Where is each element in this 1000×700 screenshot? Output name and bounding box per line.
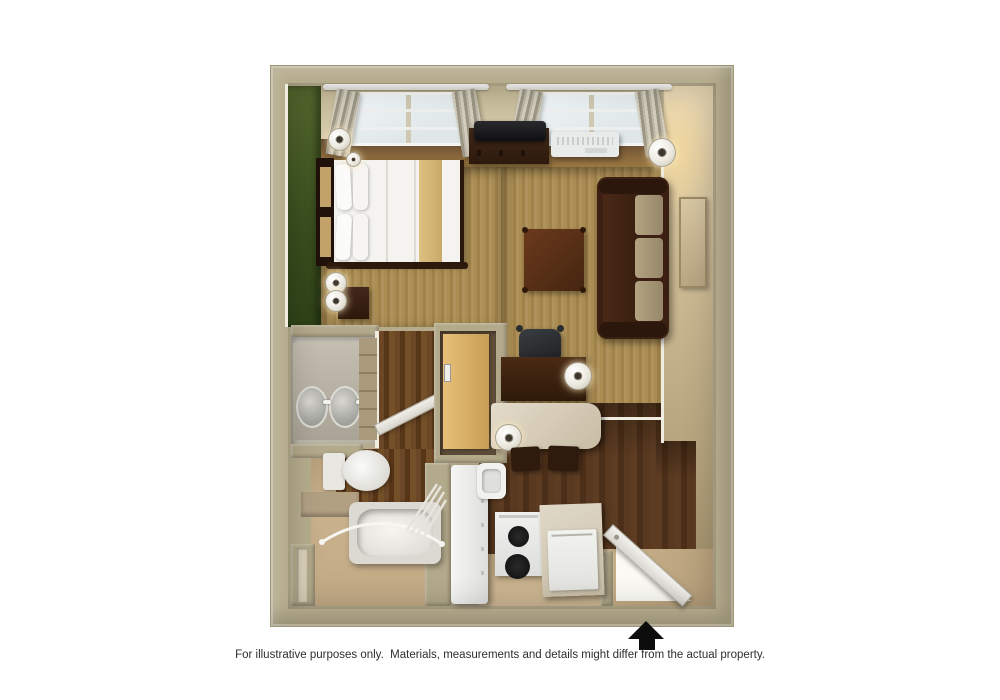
faucet — [323, 400, 331, 404]
wall-art — [679, 197, 707, 288]
desk-lamp — [564, 362, 592, 390]
bedside-lamp — [325, 290, 347, 312]
entry-wood-floor — [656, 441, 696, 551]
dressing-wood-floor — [379, 331, 434, 463]
wall-sconce — [328, 128, 351, 151]
sofa-cushion — [635, 281, 663, 321]
floor-lamp — [648, 138, 676, 167]
tv — [474, 121, 546, 141]
curtain-rod — [506, 84, 672, 90]
bed-footboard — [326, 262, 468, 269]
shower-curtain — [403, 482, 447, 540]
ac-unit — [551, 132, 619, 157]
wall-niche — [291, 544, 315, 606]
stove — [495, 512, 542, 576]
vanity-sink — [329, 386, 361, 428]
kitchen-cabinet — [539, 503, 604, 597]
ottoman-table — [524, 229, 584, 291]
window-left — [331, 84, 481, 144]
counter-stool — [548, 445, 580, 471]
sofa — [597, 177, 669, 339]
vanity-sink — [296, 386, 328, 428]
sofa-cushion — [635, 238, 663, 278]
counter-stool — [510, 446, 540, 471]
pillow — [335, 164, 352, 211]
sofa-cushion — [635, 195, 663, 235]
pillow — [353, 214, 368, 260]
bed — [334, 160, 464, 264]
bed-runner — [419, 160, 442, 264]
pillow — [335, 214, 352, 261]
sofa-arm — [599, 322, 667, 337]
toilet-bowl — [343, 450, 390, 491]
floor-plan-render — [270, 65, 734, 627]
headboard — [316, 158, 334, 266]
burner — [508, 526, 529, 547]
pillow — [353, 164, 368, 210]
burner — [505, 554, 530, 579]
disclaimer-text: For illustrative purposes only. Material… — [0, 649, 1000, 661]
sofa-seat — [603, 194, 634, 322]
niche-slit — [297, 548, 307, 602]
carpet-wood-divider — [599, 417, 664, 420]
kitchen-sink — [477, 463, 506, 499]
wall-sconce — [346, 152, 361, 167]
sofa-arm — [599, 179, 667, 194]
entrance-arrow-head — [628, 621, 664, 639]
toilet-tank — [323, 453, 345, 490]
vanity-top-wall — [291, 325, 379, 337]
curtain-rod — [323, 84, 489, 90]
closet-door — [443, 334, 489, 449]
